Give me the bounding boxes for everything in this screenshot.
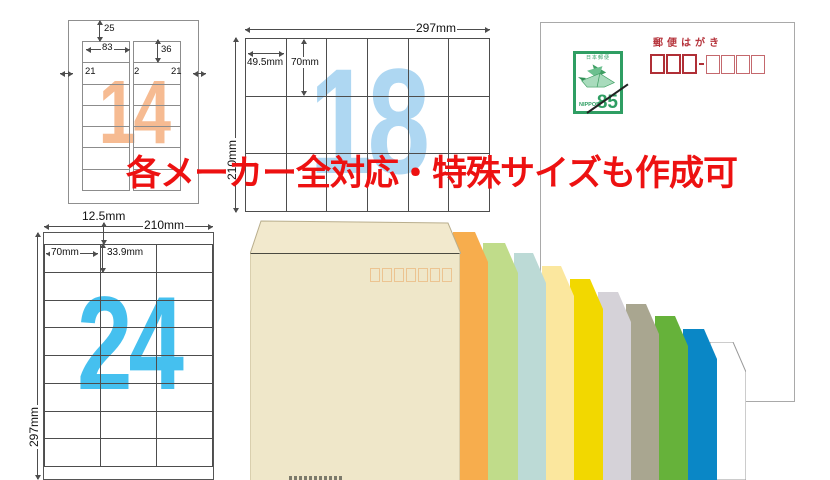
- dim-label-width: 83: [101, 43, 114, 53]
- label-cell: [101, 412, 156, 440]
- label-cell: [157, 273, 212, 301]
- label-cell: [246, 97, 286, 155]
- label-cell: [449, 39, 489, 97]
- label-cell: [449, 97, 489, 155]
- envelope-zip-box: [430, 268, 440, 282]
- dim-label-width: 70mm: [50, 247, 80, 258]
- postcard-title: 郵便はがき: [653, 34, 723, 49]
- label-cell: [45, 301, 100, 329]
- label-cell: [327, 97, 367, 155]
- zip-box: [706, 55, 720, 74]
- dim-page-width: 297mm: [415, 22, 457, 35]
- envelope-strip-cream-yellow: [542, 266, 574, 480]
- stamp-bird-icon: [578, 62, 618, 94]
- label-cell: [45, 328, 100, 356]
- label-cell: [134, 85, 180, 106]
- label-cell: [45, 384, 100, 412]
- label-cell: [157, 439, 212, 466]
- promo-image: 14 25 83 36 21 2 21 18 297mm 210mm 49.5m…: [0, 0, 830, 480]
- dim-column-gap: 2: [133, 67, 140, 77]
- zip-box: [650, 54, 665, 74]
- envelope-strip-yellow-green: [483, 243, 518, 480]
- stamp: 日本郵便 NIPPON 85: [573, 51, 623, 114]
- label-cell: [83, 85, 129, 106]
- page-width-arrow: [44, 226, 213, 227]
- label-cell: [134, 106, 180, 127]
- label-cell: [101, 328, 156, 356]
- label-grid: [44, 244, 213, 467]
- zip-box: [721, 55, 735, 74]
- zip-box: [666, 54, 681, 74]
- label-cell: [157, 412, 212, 440]
- envelope-zip-box: [382, 268, 392, 282]
- zip-box: [682, 54, 697, 74]
- label-cell: [45, 356, 100, 384]
- label-cell: [157, 301, 212, 329]
- dim-left-margin: 21: [84, 67, 97, 77]
- label-cell: [101, 384, 156, 412]
- dim-page-height: 297mm: [27, 405, 41, 449]
- label-sheet-24-diagram: 24 12.5mm 210mm 70mm 33.9mm 297mm: [43, 232, 214, 480]
- label-cell: [368, 97, 408, 155]
- label-cell: [45, 273, 100, 301]
- label-cell: [83, 127, 129, 148]
- label-column: [100, 244, 157, 467]
- dim-label-height: 36: [160, 45, 173, 55]
- label-width-arrow: [248, 53, 284, 54]
- label-cell: [157, 328, 212, 356]
- envelope-flap: [250, 217, 461, 254]
- label-cell: [101, 273, 156, 301]
- right-margin-arrow: [193, 73, 206, 74]
- zip-box: [736, 55, 750, 74]
- label-column: [82, 41, 130, 191]
- label-cell: [368, 39, 408, 97]
- label-cell: [409, 97, 449, 155]
- promo-banner-text: 各メーカー全対応・特殊サイズも作成可: [126, 153, 737, 195]
- label-cell: [101, 356, 156, 384]
- dim-page-width: 210mm: [143, 219, 185, 232]
- envelope-zip-box: [418, 268, 428, 282]
- envelope-zip-box: [394, 268, 404, 282]
- label-cell: [83, 170, 129, 190]
- label-cell: [287, 97, 327, 155]
- label-cell: [83, 148, 129, 169]
- label-cell: [327, 39, 367, 97]
- label-cell: [157, 245, 212, 273]
- label-height-arrow: [102, 244, 103, 272]
- zip-box: [751, 55, 765, 74]
- label-cell: [45, 439, 100, 466]
- envelope-zip-box: [442, 268, 452, 282]
- label-cell: [134, 127, 180, 148]
- envelope-strip-green: [655, 316, 688, 480]
- dim-label-width: 49.5mm: [246, 57, 284, 68]
- label-column: [44, 244, 101, 467]
- zip-dash: [699, 63, 704, 65]
- label-column: [156, 244, 213, 467]
- label-cell: [83, 106, 129, 127]
- label-cell: [409, 39, 449, 97]
- label-cell: [101, 301, 156, 329]
- label-cell: [45, 412, 100, 440]
- envelope-zip-box: [370, 268, 380, 282]
- envelope-zip-boxes: [370, 268, 452, 282]
- dim-top-margin: 25: [103, 24, 116, 34]
- envelope-strip-yellow: [570, 279, 603, 480]
- label-cell: [157, 384, 212, 412]
- zip-code-boxes: [650, 54, 765, 74]
- label-cell: [157, 356, 212, 384]
- left-margin-arrow: [60, 73, 73, 74]
- envelope-strip-pale-blue: [514, 253, 546, 480]
- envelope-body: [250, 253, 460, 480]
- envelope-zip-box: [406, 268, 416, 282]
- envelope-strip-blue: [683, 329, 717, 480]
- kraft-envelope: [250, 217, 461, 480]
- label-height-arrow: [157, 40, 158, 62]
- top-margin-arrow: [99, 21, 100, 41]
- envelope-logo-cutoff: [289, 476, 343, 480]
- label-cell: [101, 439, 156, 466]
- dim-label-height: 70mm: [290, 57, 320, 68]
- dim-right-margin: 21: [170, 67, 183, 77]
- stamp-issuer-label: 日本郵便: [576, 56, 620, 61]
- dim-label-height: 33.9mm: [106, 247, 144, 258]
